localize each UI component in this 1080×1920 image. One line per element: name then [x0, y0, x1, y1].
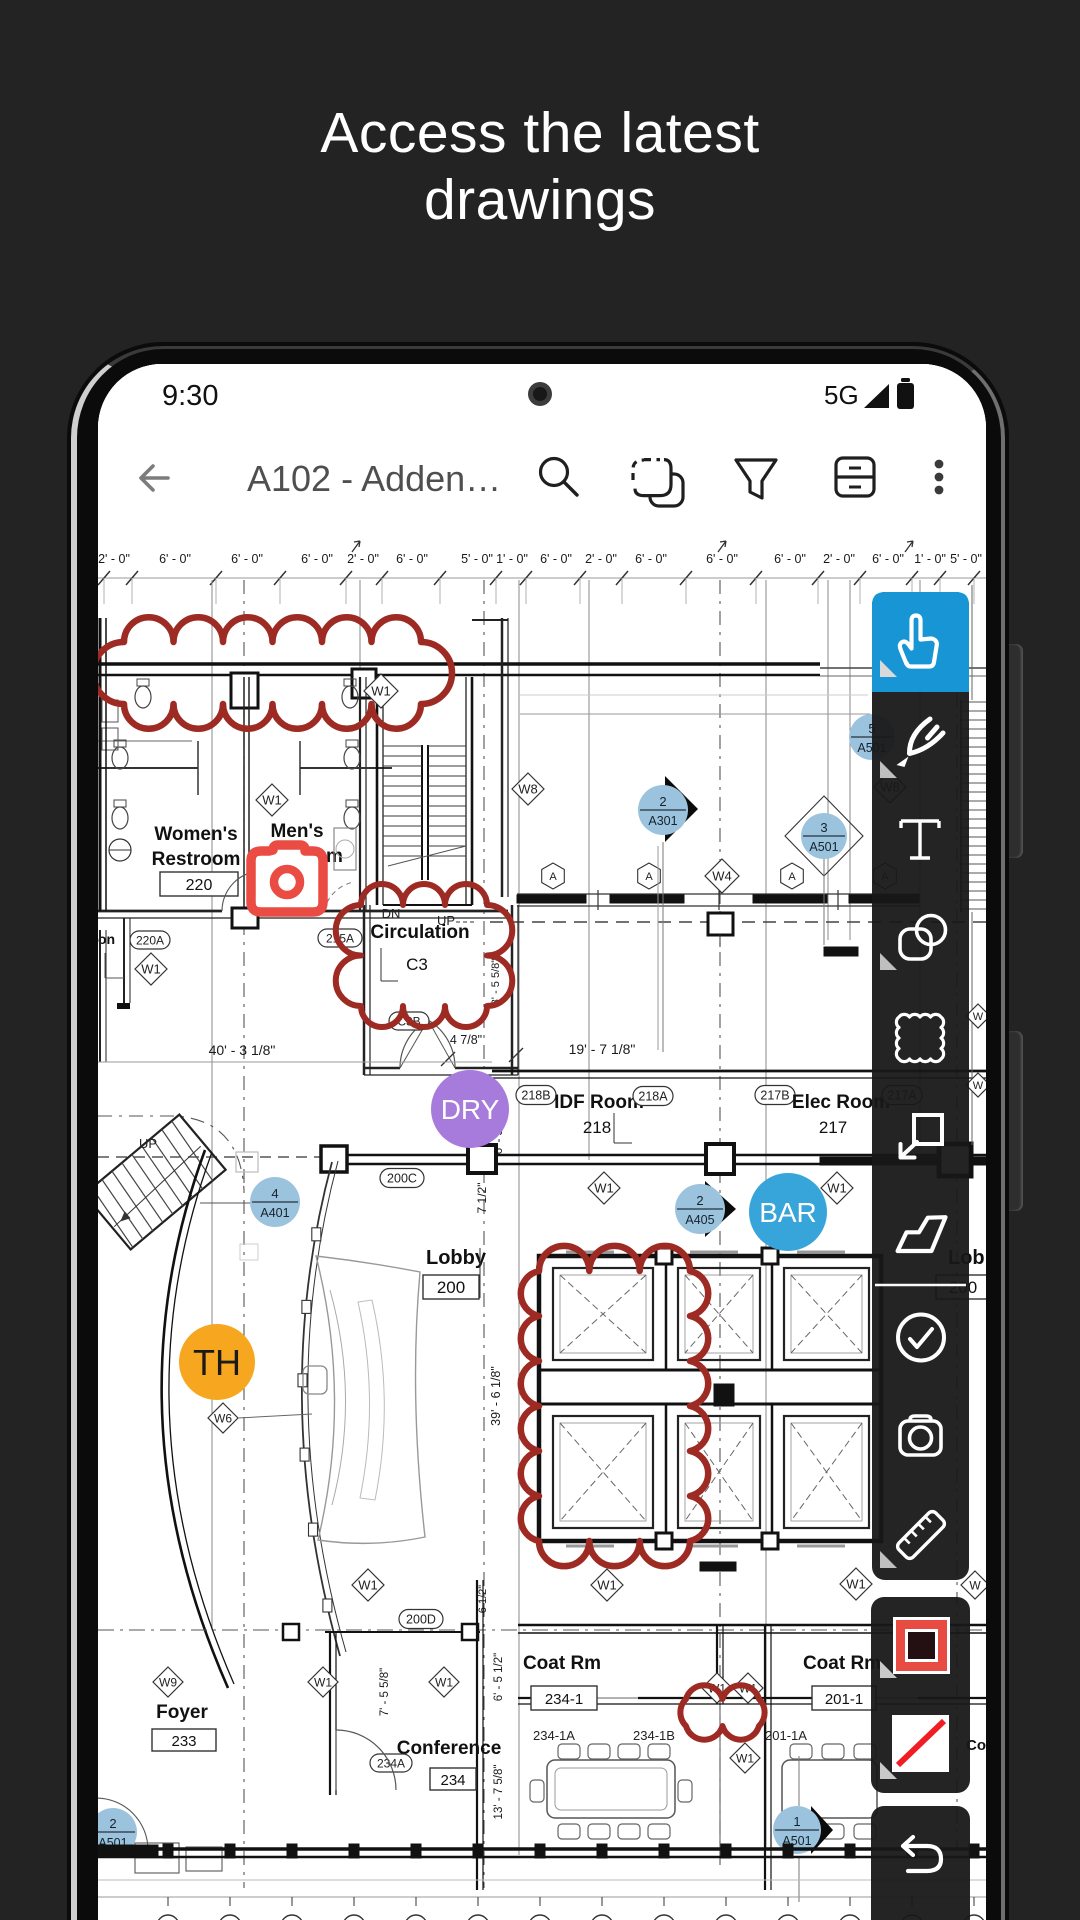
svg-text:220: 220	[186, 877, 213, 894]
svg-text:A102 - Adden…: A102 - Adden…	[247, 458, 501, 499]
svg-text:W1: W1	[736, 1751, 754, 1765]
svg-text:1' - 0": 1' - 0"	[914, 552, 946, 566]
svg-text:DRY: DRY	[441, 1094, 500, 1125]
svg-text:A405: A405	[685, 1213, 714, 1227]
svg-text:A: A	[645, 871, 653, 883]
svg-text:W1: W1	[594, 1181, 614, 1196]
svg-text:W1: W1	[371, 684, 391, 699]
svg-text:A: A	[788, 871, 796, 883]
svg-text:2' - 0": 2' - 0"	[347, 552, 379, 566]
svg-text:7' - 5 5/8": 7' - 5 5/8"	[379, 1668, 391, 1716]
svg-text:A: A	[549, 871, 557, 883]
svg-text:220A: 220A	[136, 933, 164, 947]
svg-text:5' - 0": 5' - 0"	[950, 552, 982, 566]
svg-text:W1: W1	[141, 962, 161, 977]
svg-text:200C: 200C	[387, 1172, 417, 1186]
svg-text:Men's: Men's	[270, 821, 323, 842]
svg-text:DN: DN	[382, 906, 401, 921]
svg-text:2' - 0": 2' - 0"	[98, 552, 130, 566]
svg-text:40' - 3 1/8": 40' - 3 1/8"	[209, 1042, 276, 1058]
svg-text:W6: W6	[214, 1411, 232, 1425]
svg-text:201-1: 201-1	[825, 1691, 863, 1708]
svg-text:2' - 0": 2' - 0"	[823, 552, 855, 566]
svg-text:Women's: Women's	[154, 824, 237, 845]
svg-text:6' - 0": 6' - 0"	[396, 552, 428, 566]
svg-text:W4: W4	[712, 869, 732, 884]
svg-text:3' - 5 5/8": 3' - 5 5/8"	[490, 959, 502, 1005]
svg-text:Restroom: Restroom	[152, 849, 241, 870]
svg-text:5G: 5G	[824, 380, 859, 410]
svg-text:6' - 0": 6' - 0"	[231, 552, 263, 566]
svg-text:TH: TH	[193, 1342, 241, 1383]
svg-text:Lobby: Lobby	[426, 1247, 487, 1269]
svg-text:C3: C3	[406, 955, 428, 974]
svg-text:W1: W1	[314, 1675, 332, 1689]
svg-text:Circulation: Circulation	[370, 922, 469, 943]
svg-text:W1: W1	[597, 1578, 617, 1593]
svg-text:6' - 0": 6' - 0"	[635, 552, 667, 566]
svg-text:W1: W1	[435, 1675, 453, 1689]
svg-text:2: 2	[109, 1816, 116, 1831]
svg-text:6' - 0": 6' - 0"	[301, 552, 333, 566]
svg-text:Foyer: Foyer	[156, 1702, 208, 1723]
svg-text:Coat Rm: Coat Rm	[523, 1653, 601, 1674]
svg-text:Conference: Conference	[397, 1738, 502, 1759]
svg-text:5' - 0": 5' - 0"	[461, 552, 493, 566]
svg-text:IDF Room: IDF Room	[554, 1092, 644, 1113]
svg-text:1' - 0": 1' - 0"	[496, 552, 528, 566]
svg-text:6' - 0": 6' - 0"	[774, 552, 806, 566]
svg-text:7 1/2": 7 1/2"	[475, 1183, 489, 1214]
svg-text:W: W	[969, 1578, 981, 1592]
svg-text:6' - 5 1/2": 6' - 5 1/2"	[493, 1653, 505, 1701]
svg-text:W1: W1	[846, 1577, 866, 1592]
svg-text:217B: 217B	[760, 1089, 789, 1103]
svg-text:BAR: BAR	[759, 1197, 817, 1228]
svg-text:2' - 0": 2' - 0"	[585, 552, 617, 566]
svg-text:4: 4	[271, 1186, 278, 1201]
svg-text:W8: W8	[518, 782, 538, 797]
svg-text:39' - 6 1/8": 39' - 6 1/8"	[489, 1366, 503, 1426]
svg-text:234: 234	[440, 1772, 465, 1789]
svg-text:200D: 200D	[406, 1613, 436, 1627]
svg-text:W1: W1	[358, 1578, 378, 1593]
svg-text:3: 3	[820, 820, 827, 835]
svg-text:19' - 7 1/8": 19' - 7 1/8"	[569, 1041, 636, 1057]
svg-text:234-1: 234-1	[545, 1691, 583, 1708]
svg-text:W: W	[973, 1080, 984, 1092]
svg-text:6' - 0": 6' - 0"	[706, 552, 738, 566]
svg-text:218B: 218B	[521, 1089, 550, 1103]
svg-text:1: 1	[793, 1814, 800, 1829]
svg-text:A501: A501	[809, 840, 838, 854]
svg-text:201-1A: 201-1A	[765, 1728, 807, 1743]
svg-text:A301: A301	[648, 814, 677, 828]
svg-text:233: 233	[171, 1733, 196, 1750]
svg-text:200: 200	[437, 1278, 465, 1297]
svg-text:13' - 7 5/8": 13' - 7 5/8"	[493, 1765, 505, 1820]
svg-text:2: 2	[659, 794, 666, 809]
svg-text:W1: W1	[827, 1181, 847, 1196]
svg-text:6' - 0": 6' - 0"	[540, 552, 572, 566]
svg-text:W1: W1	[262, 793, 282, 808]
svg-text:Coat Rm: Coat Rm	[803, 1653, 881, 1674]
svg-text:234-1B: 234-1B	[633, 1728, 675, 1743]
svg-text:234A: 234A	[377, 1756, 405, 1770]
svg-text:2: 2	[696, 1193, 703, 1208]
svg-text:6' - 0": 6' - 0"	[159, 552, 191, 566]
svg-text:218A: 218A	[638, 1090, 668, 1104]
svg-text:A401: A401	[260, 1206, 289, 1220]
svg-text:9:30: 9:30	[162, 380, 218, 412]
svg-text:W9: W9	[159, 1675, 177, 1689]
svg-text:217: 217	[819, 1118, 847, 1137]
svg-text:W: W	[973, 1011, 984, 1023]
svg-text:6' - 0": 6' - 0"	[872, 552, 904, 566]
svg-text:234-1A: 234-1A	[533, 1728, 575, 1743]
svg-text:218: 218	[583, 1118, 611, 1137]
svg-text:UP: UP	[139, 1136, 157, 1151]
svg-text:4 7/8": 4 7/8"	[450, 1033, 482, 1047]
